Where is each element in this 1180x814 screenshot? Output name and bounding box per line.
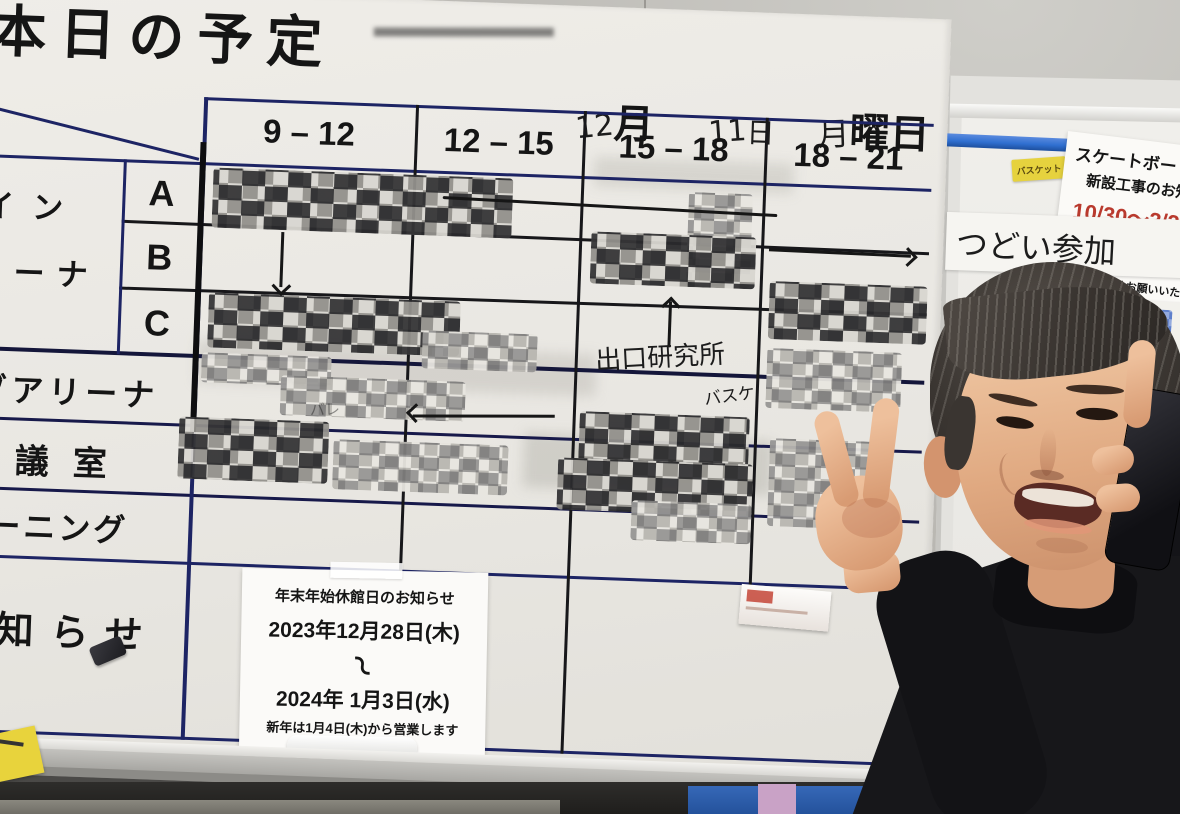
person-finger-middle	[861, 397, 900, 509]
person	[0, 0, 1180, 814]
person-knuckle-shadow	[842, 498, 900, 538]
person-finger-index	[812, 408, 862, 509]
person-finger-grip	[1095, 482, 1141, 513]
photo-scene: バスケット スケートボード 新設工事のお知 10/30〜3/3 工事車両が通行い…	[0, 0, 1180, 814]
